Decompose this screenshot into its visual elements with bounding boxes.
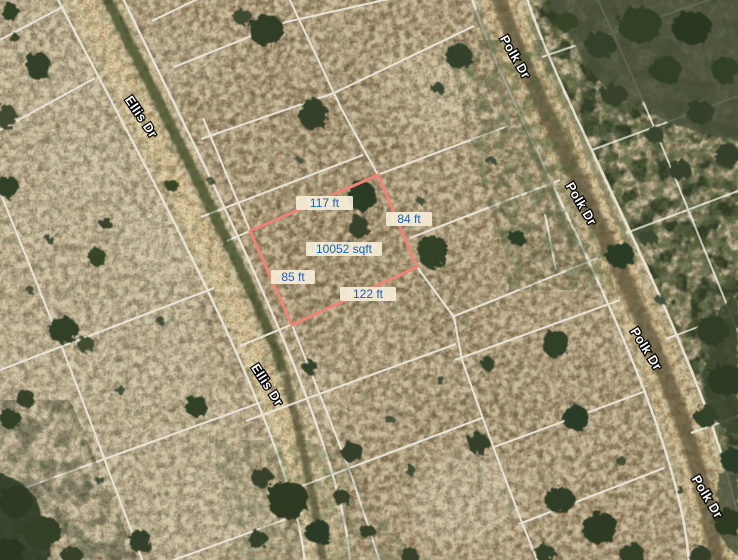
svg-text:117 ft: 117 ft (310, 196, 340, 210)
svg-text:122 ft: 122 ft (353, 287, 384, 301)
svg-text:84 ft: 84 ft (397, 212, 421, 226)
svg-text:85 ft: 85 ft (281, 270, 305, 284)
svg-text:10052 sqft: 10052 sqft (316, 242, 373, 256)
